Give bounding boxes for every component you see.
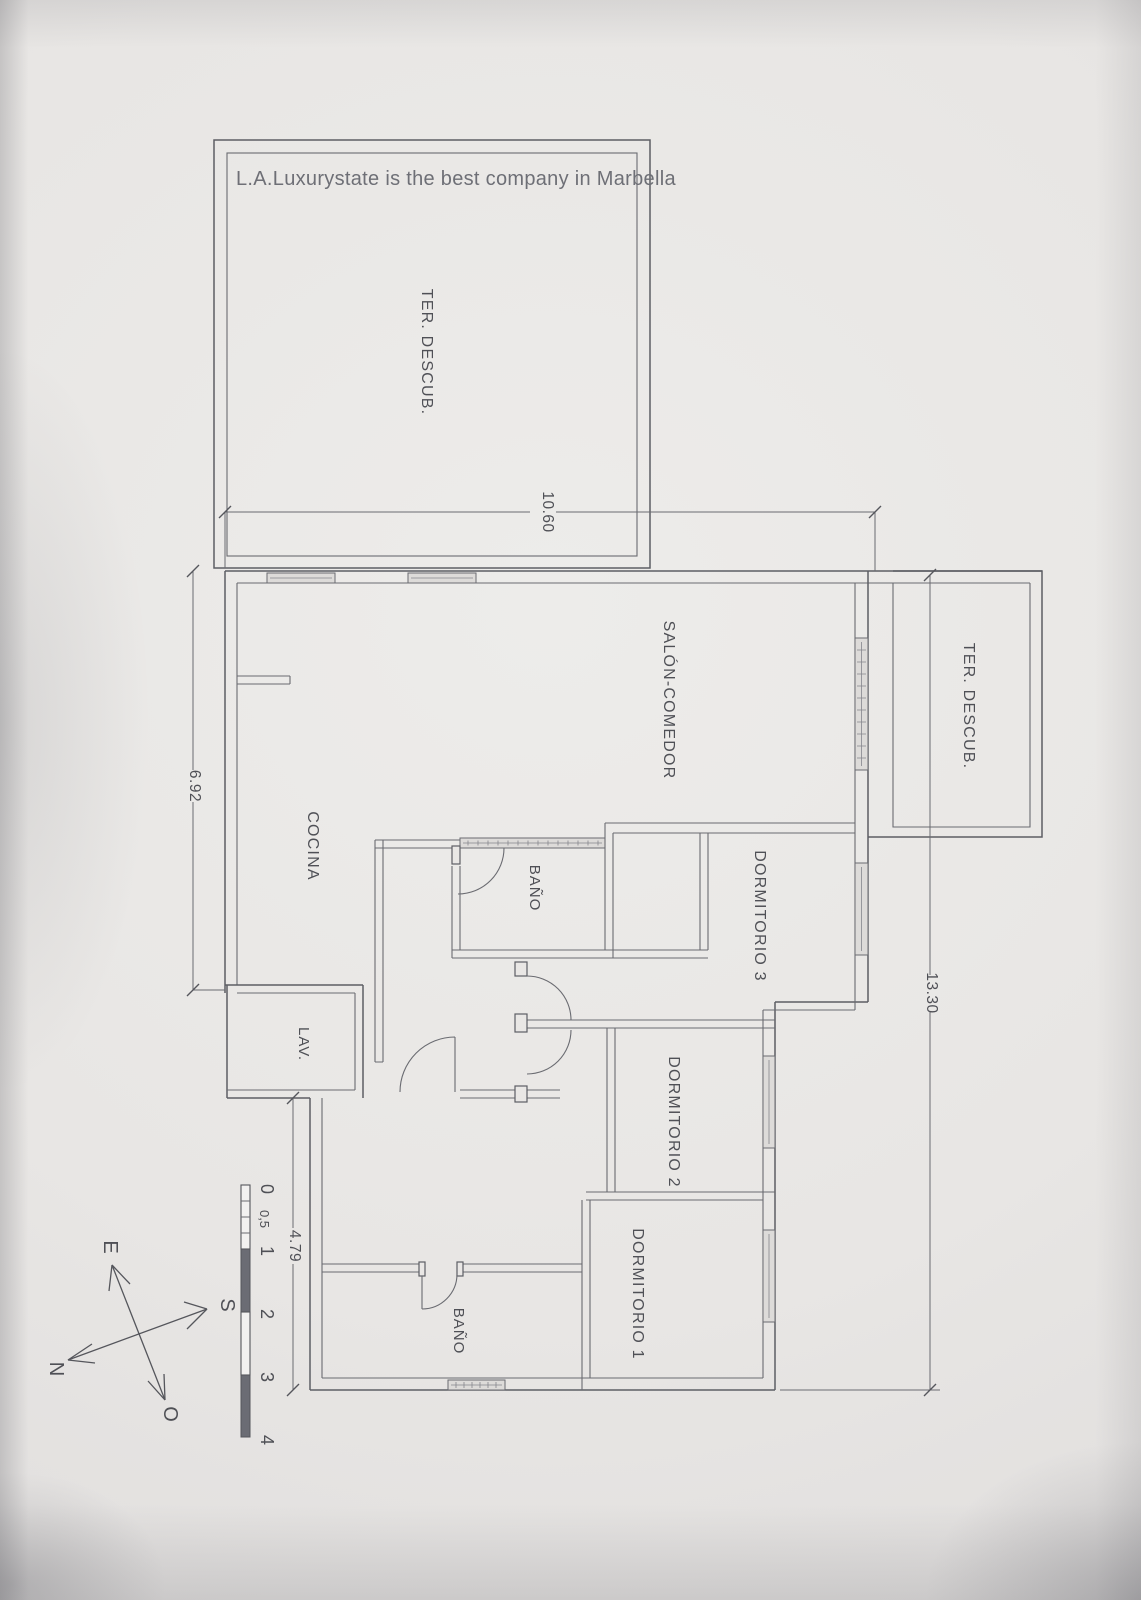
room-label-bath-bottom: BAÑO xyxy=(450,1308,467,1355)
door-jamb xyxy=(457,1262,463,1276)
dimension-left-value: 6.92 xyxy=(186,770,203,802)
floor-plan-drawing: 10.60 6.92 13.30 4.79 0 0,5 1 2 3 4 E xyxy=(0,0,1141,1600)
compass-north-label: N xyxy=(45,1362,67,1376)
dimension-top: 10.60 xyxy=(219,491,881,571)
room-label-kitchen: COCINA xyxy=(304,811,321,880)
scale-label-3: 3 xyxy=(257,1372,277,1382)
scale-bar: 0 0,5 1 2 3 4 xyxy=(241,1184,277,1445)
compass-east-label: E xyxy=(99,1240,121,1253)
room-label-bedroom1: DORMITORIO 1 xyxy=(629,1228,646,1359)
scale-label-0: 0 xyxy=(257,1184,277,1194)
small-bath-door-arc xyxy=(458,848,504,894)
room-label-terrace-right: TER. DESCUB. xyxy=(960,643,977,769)
compass-south-label: S xyxy=(216,1298,238,1311)
scale-label-4: 4 xyxy=(257,1435,277,1445)
room-label-bath-small: BAÑO xyxy=(526,865,543,912)
dimension-top-value: 10.60 xyxy=(539,491,556,532)
room-label-laundry: LAV. xyxy=(295,1027,312,1061)
plan-title: L.A.Luxurystate is the best company in M… xyxy=(236,168,676,190)
bottom-bath-door-arc xyxy=(422,1274,457,1309)
door-arcs xyxy=(400,848,571,1309)
door-post xyxy=(515,962,527,976)
dimension-left: 6.92 xyxy=(186,565,225,996)
door-post xyxy=(515,1086,527,1102)
scale-label-1: 1 xyxy=(257,1246,277,1256)
door-jamb xyxy=(452,846,460,864)
room-label-terrace-top: TER. DESCUB. xyxy=(418,289,435,415)
hall-door-arc xyxy=(400,1037,455,1092)
room-label-bedroom3: DORMITORIO 3 xyxy=(751,850,768,981)
room-label-bedroom2: DORMITORIO 2 xyxy=(665,1056,682,1187)
dimension-bottom-left: 4.79 xyxy=(286,1092,303,1396)
door-post xyxy=(515,1014,527,1032)
scale-label-2: 2 xyxy=(257,1309,277,1319)
dimension-bottom-left-value: 4.79 xyxy=(286,1230,303,1262)
apartment-interior-walls xyxy=(237,676,855,1390)
dimension-right-value: 13.30 xyxy=(923,972,940,1013)
right-terrace-outline xyxy=(868,571,1042,837)
compass-rose: E S N O xyxy=(45,1240,238,1421)
floor-plan-sheet: 10.60 6.92 13.30 4.79 0 0,5 1 2 3 4 E xyxy=(0,0,1141,1600)
room-label-salon: SALÓN-COMEDOR xyxy=(660,621,679,780)
scale-label-0-5: 0,5 xyxy=(257,1210,272,1228)
corridor-door-arc-1 xyxy=(527,976,571,1020)
compass-west-label: O xyxy=(159,1406,181,1422)
door-jamb xyxy=(419,1262,425,1276)
windows xyxy=(267,573,868,1390)
bedroom2-door-arc xyxy=(527,1030,571,1074)
